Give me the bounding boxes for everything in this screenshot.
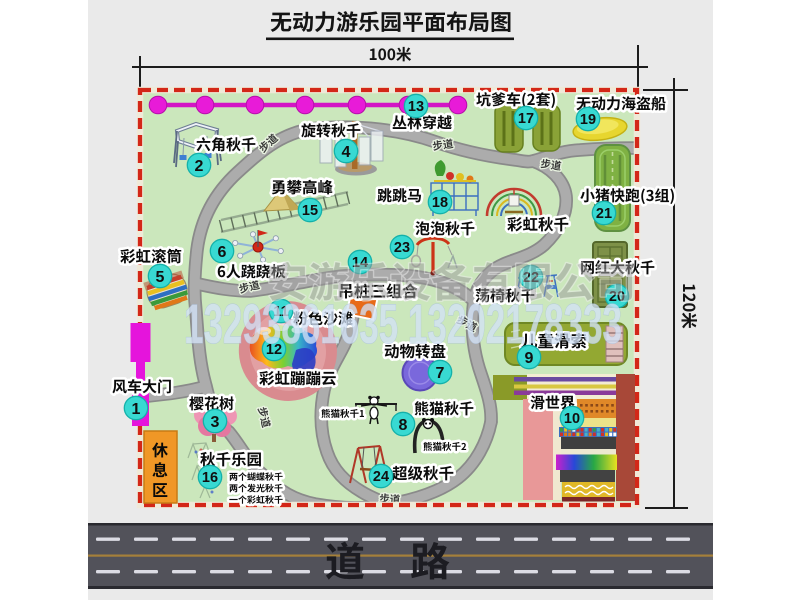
svg-text:2: 2 [195, 158, 204, 175]
svg-text:16: 16 [202, 470, 218, 486]
svg-text:10: 10 [564, 411, 580, 427]
svg-text:8: 8 [399, 417, 408, 434]
svg-text:6: 6 [218, 244, 227, 261]
svg-text:24: 24 [373, 469, 389, 485]
svg-text:5: 5 [156, 269, 165, 286]
svg-text:18: 18 [432, 195, 448, 211]
svg-text:15: 15 [302, 203, 318, 219]
svg-text:7: 7 [436, 365, 445, 382]
svg-text:21: 21 [596, 206, 612, 222]
svg-text:13: 13 [408, 99, 424, 115]
svg-text:1: 1 [132, 401, 141, 418]
svg-text:23: 23 [394, 240, 410, 256]
svg-text:3: 3 [211, 414, 220, 431]
svg-text:19: 19 [580, 112, 596, 128]
svg-text:13293861635 13202178333: 13293861635 13202178333 [184, 292, 622, 355]
svg-text:4: 4 [342, 144, 351, 161]
svg-text:17: 17 [518, 111, 534, 127]
